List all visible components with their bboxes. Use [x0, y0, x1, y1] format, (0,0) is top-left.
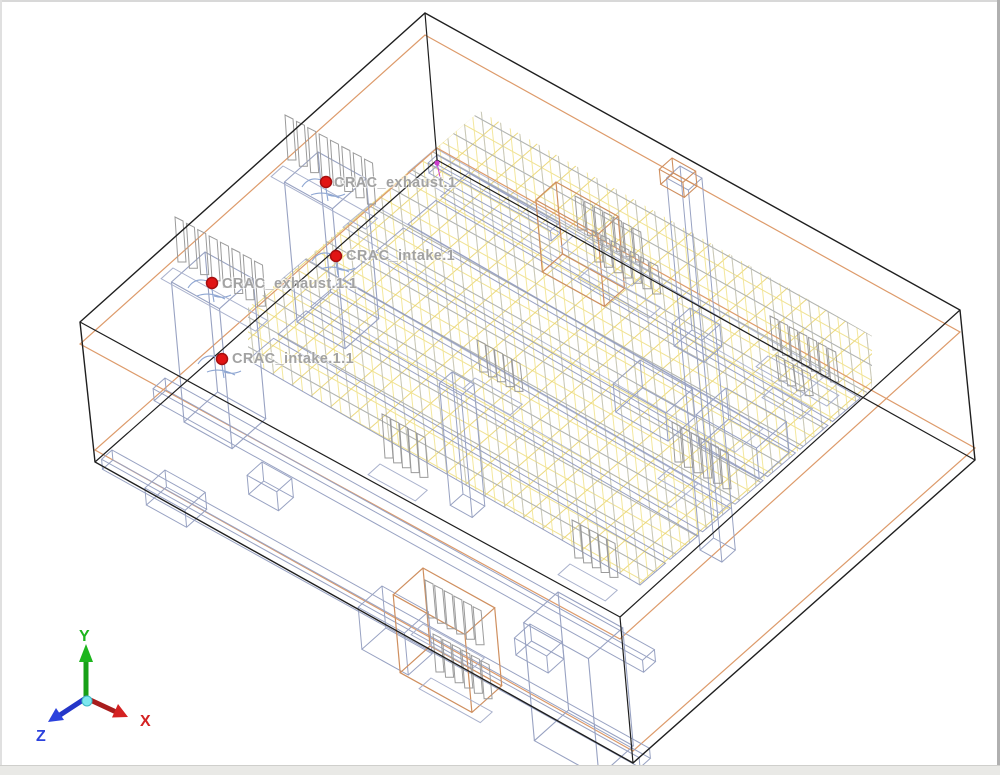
probe-marker-crac-exhaust-1-1[interactable]: [207, 278, 218, 289]
y-axis-arrowhead: [79, 644, 93, 662]
window-border-top: [0, 0, 1000, 2]
probe-label-crac-exhaust-1: CRAC_exhaust.1: [334, 175, 456, 191]
window-border-left: [0, 0, 2, 775]
probe-marker-crac-intake-1[interactable]: [331, 251, 342, 262]
model-scene[interactable]: CRAC_exhaust.1 CRAC_intake.1 CRAC_exhaus…: [0, 0, 1000, 775]
x-axis-label: X: [140, 713, 151, 730]
probe-marker-crac-exhaust-1[interactable]: [321, 177, 332, 188]
probe-marker-crac-intake-1-1[interactable]: [217, 354, 228, 365]
probe-label-crac-exhaust-1-1: CRAC_exhaust.1.1: [222, 276, 357, 292]
window-border-bottom-line: [0, 765, 1000, 766]
probe-label-crac-intake-1: CRAC_intake.1: [346, 248, 455, 264]
z-axis-label: Z: [36, 728, 46, 745]
origin-sphere: [82, 696, 92, 706]
viewport-3d[interactable]: CRAC_exhaust.1 CRAC_intake.1 CRAC_exhaus…: [0, 0, 1000, 775]
y-axis-label: Y: [79, 628, 90, 645]
probe-label-crac-intake-1-1: CRAC_intake.1.1: [232, 351, 354, 367]
window-border-bottom: [0, 766, 1000, 775]
axis-triad: Y X Z: [36, 628, 151, 745]
